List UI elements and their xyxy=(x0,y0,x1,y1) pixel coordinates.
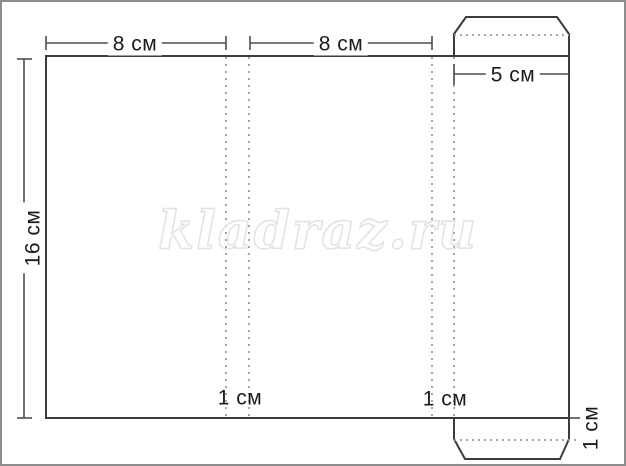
dimension-label-8cm-left: 8 см xyxy=(108,33,162,56)
bottom-flap-outline xyxy=(454,418,569,459)
dimension-label-16cm: 16 см xyxy=(22,203,45,274)
pattern-outline xyxy=(46,56,569,418)
bottom-flap-label-1cm: 1 см xyxy=(581,406,602,450)
dimension-label-8cm-middle: 8 см xyxy=(314,33,368,56)
dimension-label-5cm: 5 см xyxy=(486,64,540,87)
top-flap-outline xyxy=(454,17,569,56)
pattern-diagram: kladraz.ru 8 см 8 см 5 см 16 см 1 см 1 с… xyxy=(0,0,626,466)
fold-label-1cm-left: 1 см xyxy=(218,388,262,409)
fold-label-1cm-right: 1 см xyxy=(423,389,467,410)
